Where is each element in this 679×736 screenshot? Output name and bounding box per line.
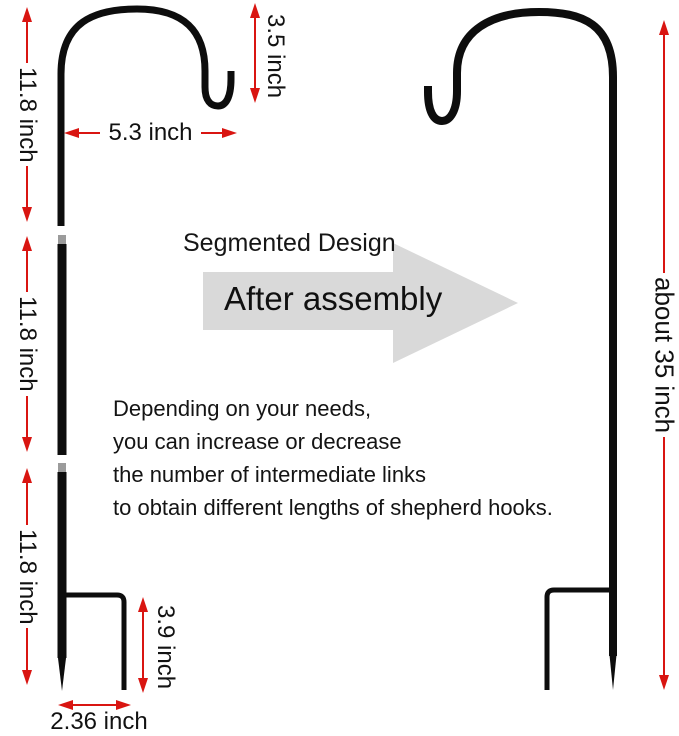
- arrowhead-up-icon: [250, 3, 260, 18]
- shepherd-hook-diagram: [0, 0, 679, 736]
- dimension-line: [73, 704, 116, 706]
- dimension-assembled-height: about 35 inch: [648, 20, 679, 690]
- assembled-hook: [428, 12, 613, 656]
- arrowhead-down-icon: [22, 207, 32, 222]
- dimension-line: [26, 628, 28, 670]
- dimension-hook-width: 5.3 inch: [64, 119, 237, 147]
- product-dimension-diagram: { "colors": { "dimension_red": "#d91511"…: [0, 0, 679, 736]
- ground-step: [547, 590, 610, 690]
- dimension-label: 11.8 inch: [13, 63, 41, 167]
- dimension-line: [26, 396, 28, 437]
- dimension-label: 5.3 inch: [100, 119, 200, 147]
- dimension-line: [201, 132, 222, 134]
- dimension-line: [142, 612, 144, 678]
- dimension-line: [26, 166, 28, 207]
- dimension-label: 3.9 inch: [151, 605, 179, 689]
- arrowhead-down-icon: [250, 88, 260, 103]
- dimension-line: [26, 483, 28, 525]
- description-line: Depending on your needs,: [113, 392, 553, 425]
- design-title: Segmented Design: [183, 229, 396, 258]
- connector-pin-icon: [58, 235, 66, 244]
- dimension-label: 11.8 inch: [13, 292, 41, 396]
- description-line: you can increase or decrease: [113, 425, 553, 458]
- dimension-line: [663, 35, 665, 273]
- stake-point: [58, 654, 67, 691]
- description-text: Depending on your needs, you can increas…: [113, 392, 553, 524]
- dimension-label: about 35 inch: [649, 273, 679, 437]
- ground-step: [64, 595, 124, 690]
- dimension-line: [26, 22, 28, 63]
- stake-point: [609, 650, 617, 690]
- arrowhead-up-icon: [659, 20, 669, 35]
- dimension-label: 3.5 inch: [261, 14, 289, 98]
- dimension-segment3-length: 11.8 inch: [12, 468, 42, 685]
- arrowhead-down-icon: [22, 437, 32, 452]
- arrowhead-up-icon: [22, 468, 32, 483]
- arrowhead-left-icon: [64, 128, 79, 138]
- dimension-label: 2.36 inch: [38, 708, 160, 736]
- dimension-segment1-length: 11.8 inch: [12, 7, 42, 222]
- description-line: the number of intermediate links: [113, 458, 553, 491]
- arrowhead-down-icon: [659, 675, 669, 690]
- segmented-hook-top-section: [61, 9, 231, 226]
- dimension-hook-height: [249, 3, 261, 103]
- arrowhead-up-icon: [22, 7, 32, 22]
- after-assembly-caption: After assembly: [224, 280, 442, 318]
- dimension-line: [26, 251, 28, 292]
- arrowhead-down-icon: [22, 670, 32, 685]
- dimension-stake-height: [137, 597, 149, 693]
- dimension-label: 11.8 inch: [13, 525, 41, 629]
- connector-pin-icon: [58, 463, 66, 472]
- arrowhead-down-icon: [138, 678, 148, 693]
- arrowhead-up-icon: [138, 597, 148, 612]
- description-line: to obtain different lengths of shepherd …: [113, 491, 553, 524]
- arrowhead-up-icon: [22, 236, 32, 251]
- dimension-line: [79, 132, 100, 134]
- dimension-line: [254, 18, 256, 88]
- dimension-segment2-length: 11.8 inch: [12, 236, 42, 452]
- arrowhead-right-icon: [222, 128, 237, 138]
- dimension-line: [663, 437, 665, 675]
